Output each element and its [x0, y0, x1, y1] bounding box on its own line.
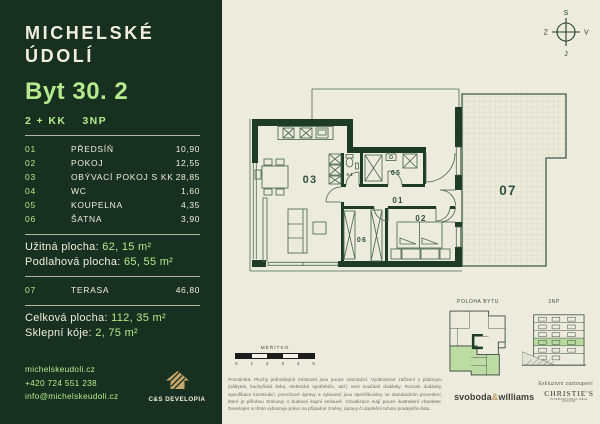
plan-room-label-04: 04: [346, 172, 353, 177]
floor-elevation-drawing: [522, 309, 586, 371]
terrace-07: [462, 94, 566, 266]
christies-wordmark: CHRISTIE'S: [544, 390, 594, 398]
divider: [25, 276, 200, 277]
house-icon: [166, 371, 189, 389]
divider: [25, 234, 200, 235]
cellar-value: 2, 75 m²: [95, 327, 138, 339]
bed: [391, 222, 450, 259]
unit-meta: 2 + KK 3NP: [25, 115, 200, 127]
scale-bar-ticks: 0 1 2 3 4 5: [235, 361, 315, 366]
plan-room-label-03: 03: [303, 174, 318, 186]
scale-tick: 0: [235, 361, 238, 366]
table-row: 06 ŠATNA 3,90: [25, 212, 200, 226]
room-area: 12,55: [176, 158, 200, 168]
kitchen-counter: [278, 127, 333, 140]
disclaimer-text: Poznámka: Plochy jednotlivých místností …: [228, 376, 442, 412]
scale-bar-segments: [235, 353, 315, 359]
floor-area: Podlahová plocha: 65, 55 m²: [25, 256, 200, 268]
total-area-value: 112, 35 m²: [111, 312, 166, 324]
scale-tick: 1: [250, 361, 253, 366]
website-link[interactable]: michelskeudoli.cz: [25, 363, 118, 377]
room-number: 06: [25, 214, 71, 224]
room-number: 02: [25, 158, 71, 168]
unit-floor: 3NP: [82, 115, 107, 127]
room-table: 01 PŘEDSÍŇ 10,90 02 POKOJ 12,55 03 OBÝVA…: [25, 142, 200, 226]
compass-west: Z: [544, 30, 549, 37]
scale-tick: 4: [297, 361, 300, 366]
brand-logo-line2: ÚDOLÍ: [25, 45, 200, 68]
wardrobes: [344, 210, 382, 261]
usable-area: Užitná plocha: 62, 15 m²: [25, 241, 200, 253]
table-row: 05 KOUPELNA 4,35: [25, 198, 200, 212]
table-row: 01 PŘEDSÍŇ 10,90: [25, 142, 200, 156]
room-area: 46,80: [176, 285, 200, 295]
unit-position-label: POLOHA BYTU: [442, 299, 514, 305]
radiator: [263, 198, 267, 261]
scale-tick: 3: [281, 361, 284, 366]
scale-bar-title: MĚŘÍTKO: [235, 346, 315, 351]
divider: [25, 305, 200, 306]
room-name: TERASA: [71, 285, 176, 295]
terrace-row: 07 TERASA 46,80: [25, 283, 200, 297]
room-name: ŠATNA: [71, 214, 181, 224]
room-area: 10,90: [176, 144, 200, 154]
table-row: 03 OBÝVACÍ POKOJ S KK 28,85: [25, 170, 200, 184]
room-name: KOUPELNA: [71, 200, 181, 210]
room-number: 07: [25, 285, 71, 295]
room-number: 04: [25, 186, 71, 196]
kitchen-tall-units: [329, 154, 341, 184]
table-row: 02 POKOJ 12,55: [25, 156, 200, 170]
plan-room-label-06: 06: [357, 237, 367, 244]
contact-block: michelskeudoli.cz +420 724 551 238 info@…: [25, 363, 118, 404]
plan-room-label-05: 05: [391, 170, 401, 177]
compass-north: S: [564, 10, 569, 17]
plan-room-label-07: 07: [499, 183, 516, 198]
floor-area-value: 65, 55 m²: [124, 256, 173, 268]
room-area: 1,60: [181, 186, 200, 196]
usable-area-label: Užitná plocha:: [25, 241, 99, 253]
compass-rose: S V J Z: [542, 6, 590, 58]
developer-logo: C&S DEVELOPIA: [146, 371, 208, 403]
total-area-label: Celková plocha:: [25, 312, 108, 324]
unit-layout: 2 + KK: [25, 115, 66, 127]
christies-subtext: INTERNATIONAL REAL ESTATE: [544, 399, 594, 404]
property-sheet: MICHELSKÉ ÚDOLÍ Byt 30. 2 2 + KK 3NP 01 …: [0, 0, 600, 424]
total-area: Celková plocha: 112, 35 m²: [25, 312, 200, 324]
room-number: 01: [25, 144, 71, 154]
room-name: WC: [71, 186, 181, 196]
sofa: [288, 209, 326, 253]
compass-east: V: [584, 30, 589, 37]
plan-area: S V J Z: [222, 0, 600, 424]
agency-logos: svoboda&williams CHRISTIE'S INTERNATIONA…: [476, 390, 594, 404]
unit-title: Byt 30. 2: [25, 78, 200, 106]
room-number: 05: [25, 200, 71, 210]
divider: [25, 135, 200, 136]
unit-position-minimap: POLOHA BYTU: [442, 299, 514, 382]
scale-bar: MĚŘÍTKO 0 1 2 3 4 5: [235, 346, 315, 366]
room-name: POKOJ: [71, 158, 176, 168]
compass-south: J: [564, 51, 568, 58]
phone-link[interactable]: +420 724 551 238: [25, 377, 118, 391]
cellar-area: Sklepní kóje: 2, 75 m²: [25, 327, 200, 339]
floor-elevation-minimap: 3NP: [518, 299, 590, 376]
room-number: 03: [25, 172, 71, 182]
scale-tick: 2: [266, 361, 269, 366]
sw-part2: williams: [498, 392, 534, 402]
floor-plan: 03 04 05 01 02 06 07: [230, 75, 600, 301]
room-area: 28,85: [176, 172, 200, 182]
brand-logo-line1: MICHELSKÉ: [25, 22, 200, 45]
brand-logo: MICHELSKÉ ÚDOLÍ: [25, 22, 200, 67]
usable-area-value: 62, 15 m²: [102, 241, 151, 253]
developer-logo-text: C&S DEVELOPIA: [146, 396, 208, 403]
floor-area-label: Podlahová plocha:: [25, 256, 121, 268]
sw-part1: svoboda: [454, 392, 492, 402]
wc-fixtures: [346, 155, 359, 170]
exclusive-representation-label: Exkluzivní zastoupení: [507, 381, 593, 387]
plan-room-label-02: 02: [415, 214, 426, 223]
svoboda-williams-logo: svoboda&williams: [454, 392, 534, 402]
plan-room-label-01: 01: [392, 196, 403, 205]
doors: [326, 153, 456, 222]
sidebar: MICHELSKÉ ÚDOLÍ Byt 30. 2 2 + KK 3NP 01 …: [0, 0, 222, 424]
room-name: OBÝVACÍ POKOJ S KK: [71, 172, 176, 182]
cellar-label: Sklepní kóje:: [25, 327, 92, 339]
scale-tick: 5: [312, 361, 315, 366]
room-name: PŘEDSÍŇ: [71, 144, 176, 154]
christies-logo: CHRISTIE'S INTERNATIONAL REAL ESTATE: [544, 390, 594, 404]
floor-elevation-label: 3NP: [518, 299, 590, 305]
dining-table: [255, 159, 288, 195]
table-row: 04 WC 1,60: [25, 184, 200, 198]
room-area: 4,35: [181, 200, 200, 210]
email-link[interactable]: info@michelskeudoli.cz: [25, 390, 118, 404]
room-area: 3,90: [181, 214, 200, 224]
unit-position-drawing: [448, 309, 508, 377]
